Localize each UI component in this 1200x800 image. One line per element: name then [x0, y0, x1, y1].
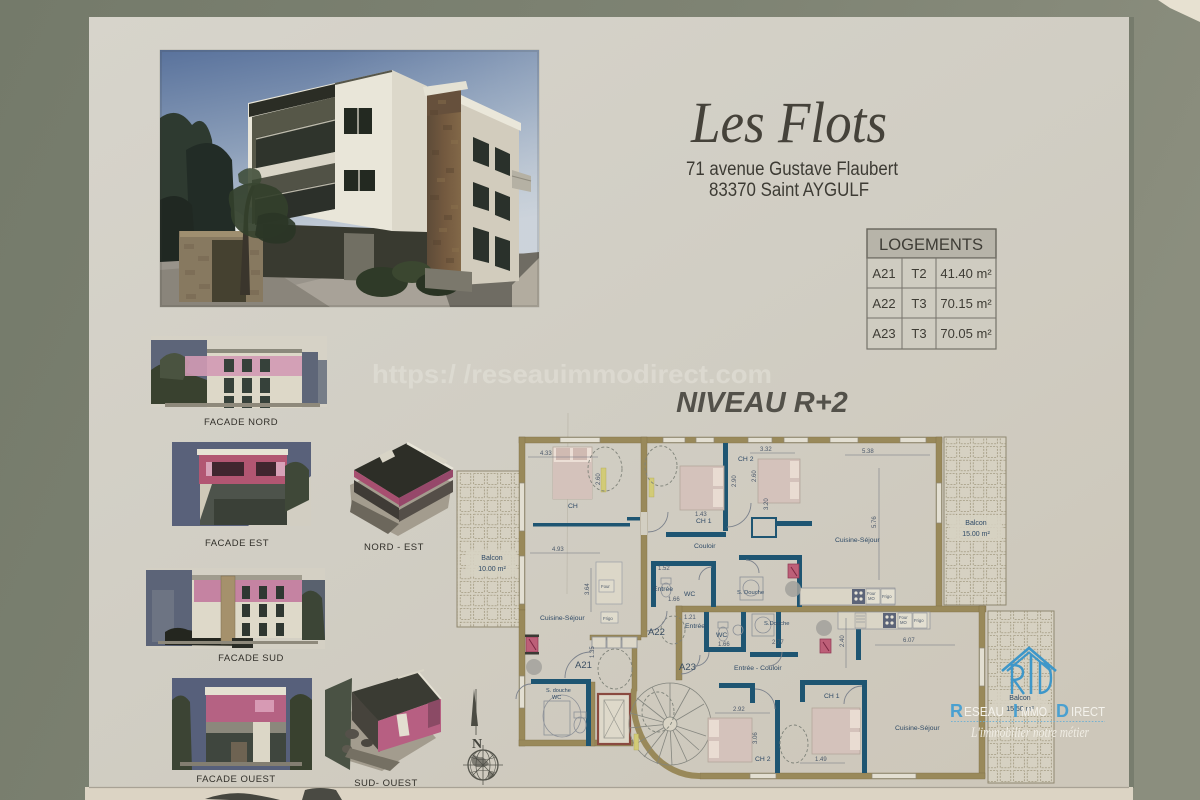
- svg-text:CH 2: CH 2: [738, 456, 754, 463]
- svg-text:83370 Saint AYGULF: 83370 Saint AYGULF: [709, 180, 869, 201]
- svg-text:NIVEAU R+2: NIVEAU R+2: [676, 387, 848, 419]
- svg-text:T3: T3: [911, 296, 926, 311]
- svg-text:4.93: 4.93: [552, 547, 564, 553]
- svg-text:3.64: 3.64: [585, 583, 591, 595]
- svg-text:FACADE OUEST: FACADE OUEST: [196, 774, 275, 785]
- svg-text:FACADE EST: FACADE EST: [205, 538, 269, 549]
- svg-text:Frigo: Frigo: [914, 618, 924, 623]
- svg-text:Balcon: Balcon: [965, 520, 987, 527]
- svg-text:WC: WC: [716, 632, 727, 639]
- svg-text:FACADE SUD: FACADE SUD: [218, 653, 284, 664]
- svg-text:MMO: MMO: [1021, 704, 1047, 719]
- svg-text:2.60: 2.60: [596, 473, 602, 485]
- svg-text:1.49: 1.49: [815, 757, 827, 763]
- svg-text:IRECT: IRECT: [1071, 704, 1105, 719]
- svg-text:Cuisine-Séjour: Cuisine-Séjour: [895, 725, 940, 732]
- svg-text:Balcon: Balcon: [481, 555, 503, 562]
- svg-text:15.00 m²: 15.00 m²: [962, 531, 990, 538]
- svg-text:Les Flots: Les Flots: [690, 90, 887, 155]
- svg-text:2.60: 2.60: [752, 470, 758, 482]
- svg-text:S.Douche: S.Douche: [764, 621, 789, 627]
- svg-text:1.66: 1.66: [718, 642, 730, 648]
- svg-text:1.66: 1.66: [668, 597, 680, 603]
- svg-text:41.40 m²: 41.40 m²: [940, 266, 992, 281]
- svg-text:A21: A21: [872, 266, 895, 281]
- svg-text:CH: CH: [568, 503, 578, 510]
- svg-text:1.21: 1.21: [684, 615, 696, 621]
- svg-text:5.76: 5.76: [872, 516, 878, 528]
- svg-text:MO: MO: [900, 620, 907, 625]
- svg-text:Entrée - Couloir: Entrée - Couloir: [734, 665, 782, 672]
- svg-text:LOGEMENTS: LOGEMENTS: [879, 235, 983, 254]
- svg-text:NORD - EST: NORD - EST: [364, 542, 424, 553]
- svg-text:R: R: [950, 701, 963, 721]
- svg-text:WC: WC: [684, 591, 695, 598]
- svg-text:ESEAU: ESEAU: [964, 704, 1004, 719]
- svg-text:2.90: 2.90: [732, 475, 738, 487]
- svg-text:CH 2: CH 2: [755, 756, 771, 763]
- svg-text:A22: A22: [872, 296, 895, 311]
- svg-text:Cuisine-Séjour: Cuisine-Séjour: [835, 537, 880, 544]
- svg-text:Frigo: Frigo: [603, 616, 613, 621]
- svg-text:S. douche: S. douche: [546, 688, 571, 694]
- svg-text:1.35: 1.35: [590, 646, 596, 658]
- svg-text:I: I: [1013, 701, 1018, 721]
- svg-text:10.00 m²: 10.00 m²: [478, 566, 506, 573]
- svg-text:L'immobilier notre métier: L'immobilier notre métier: [970, 725, 1089, 741]
- svg-text:A22: A22: [648, 627, 665, 638]
- svg-text:Cuisine-Séjour: Cuisine-Séjour: [540, 615, 585, 622]
- svg-text:WC: WC: [552, 695, 561, 701]
- svg-text:FACADE NORD: FACADE NORD: [204, 417, 278, 428]
- svg-text:S. Douche: S. Douche: [737, 590, 764, 596]
- svg-text:Four: Four: [601, 584, 610, 589]
- svg-text:2.92: 2.92: [733, 707, 745, 713]
- svg-text:T3: T3: [911, 326, 926, 341]
- svg-text:SUD- OUEST: SUD- OUEST: [354, 778, 418, 789]
- svg-text:Frigo: Frigo: [882, 594, 892, 599]
- svg-text:6.07: 6.07: [903, 638, 915, 644]
- svg-text:A23: A23: [872, 326, 895, 341]
- svg-text:https:/ /reseauimmodirect.com: https:/ /reseauimmodirect.com: [372, 359, 772, 389]
- svg-text:71 avenue Gustave Flaubert: 71 avenue Gustave Flaubert: [686, 159, 899, 180]
- svg-text:5.38: 5.38: [862, 449, 874, 455]
- svg-text:4.33: 4.33: [540, 451, 552, 457]
- svg-text:70.05 m²: 70.05 m²: [940, 326, 992, 341]
- svg-text:D: D: [1056, 701, 1069, 721]
- svg-text:A23: A23: [679, 662, 696, 673]
- svg-text:Entrée: Entrée: [653, 586, 673, 593]
- svg-text:CH 1: CH 1: [696, 518, 712, 525]
- svg-text:T2: T2: [911, 266, 926, 281]
- svg-text:1.52: 1.52: [658, 566, 670, 572]
- svg-text:Entrée: Entrée: [685, 623, 705, 630]
- svg-text:MO: MO: [868, 596, 875, 601]
- svg-text:Couloir: Couloir: [694, 543, 716, 550]
- svg-text:70.15 m²: 70.15 m²: [940, 296, 992, 311]
- svg-text:A21: A21: [575, 660, 592, 671]
- svg-text:3.06: 3.06: [753, 732, 759, 744]
- svg-text:2.77: 2.77: [772, 640, 784, 646]
- svg-text:3.20: 3.20: [764, 498, 770, 510]
- svg-text:3.32: 3.32: [760, 447, 772, 453]
- svg-text:CH 1: CH 1: [824, 693, 840, 700]
- svg-text:2.40: 2.40: [840, 635, 846, 647]
